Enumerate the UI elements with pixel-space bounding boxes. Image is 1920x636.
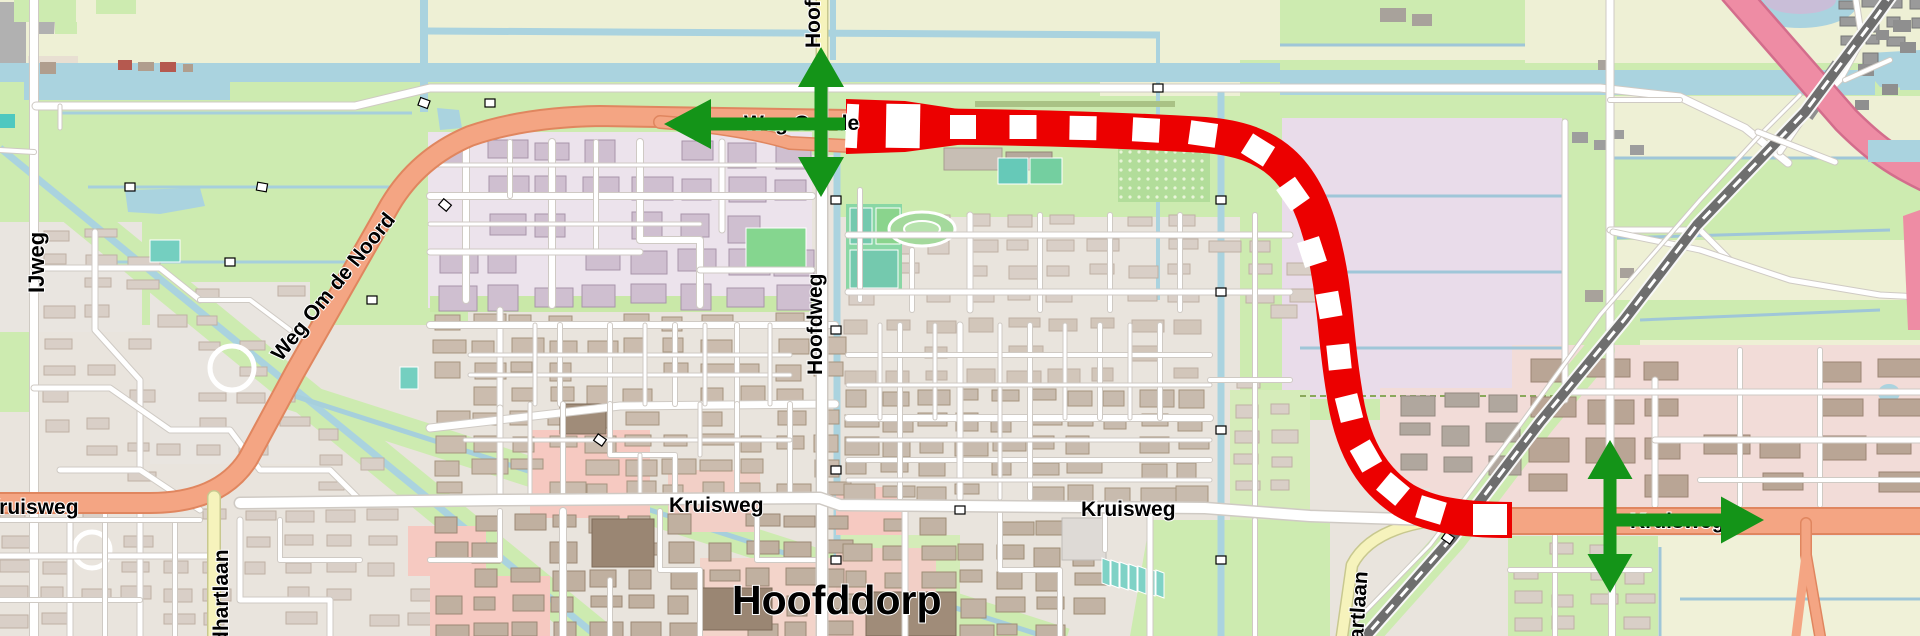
svg-text:IJweg: IJweg xyxy=(24,232,49,293)
svg-text:Kruisweg: Kruisweg xyxy=(669,494,764,517)
svg-text:Hoofdweg: Hoofdweg xyxy=(804,274,827,375)
svg-text:aartlaan: aartlaan xyxy=(1344,570,1373,636)
svg-text:Hoofdweg: Hoofdweg xyxy=(802,0,825,48)
svg-text:Kruisweg: Kruisweg xyxy=(1081,498,1176,521)
svg-text:Hoofddorp: Hoofddorp xyxy=(732,577,941,623)
svg-text:Kruisweg: Kruisweg xyxy=(0,496,79,519)
svg-text:dhartlaan: dhartlaan xyxy=(210,549,233,636)
